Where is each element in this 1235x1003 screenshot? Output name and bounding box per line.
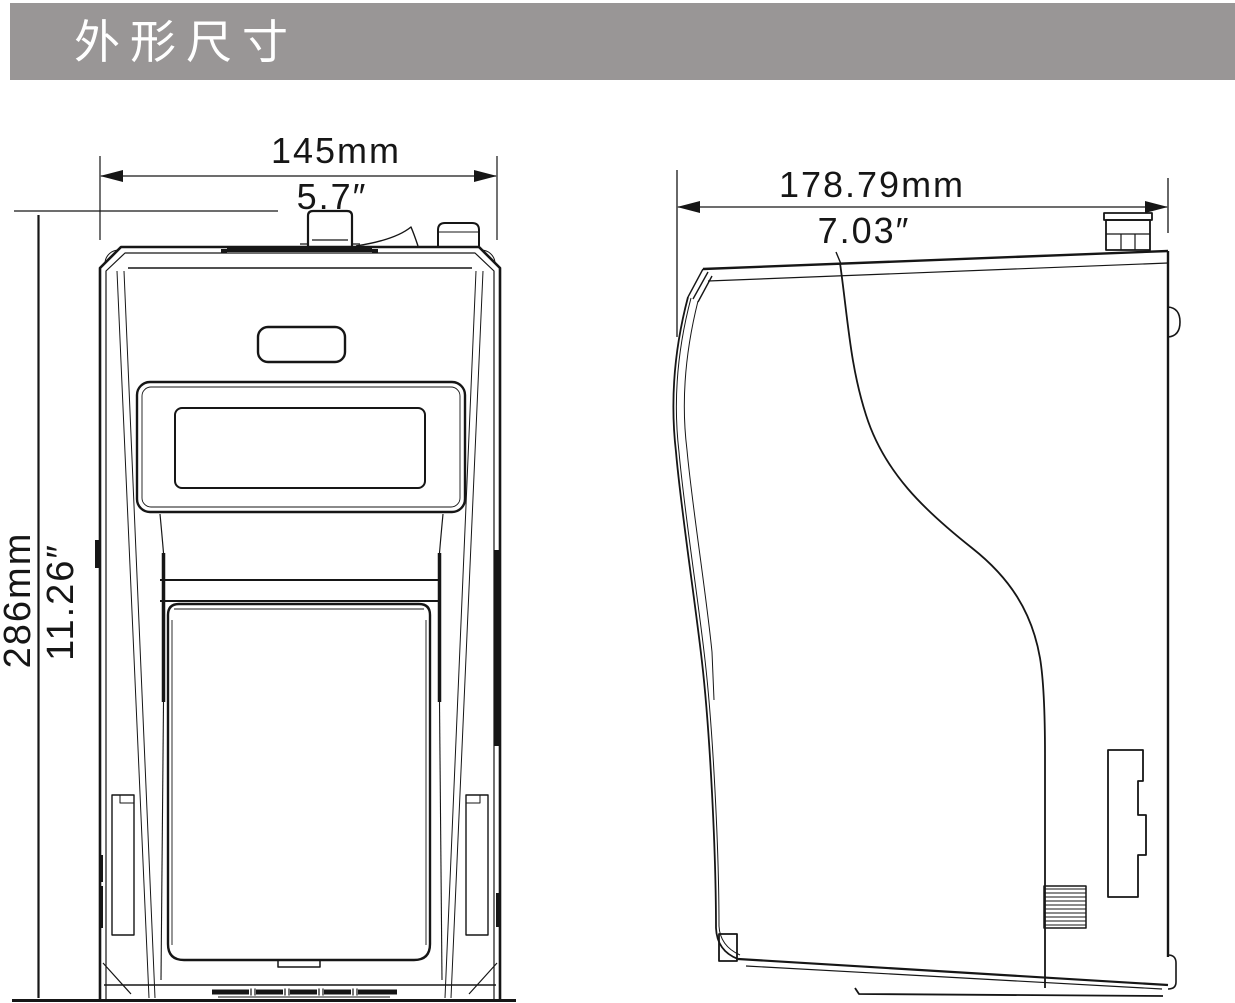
feed-button xyxy=(258,327,345,362)
display-bezel xyxy=(137,382,465,512)
recess-wall-right-top xyxy=(440,514,444,553)
side-view-drawing xyxy=(673,213,1180,996)
side-bottom-edge-inner xyxy=(746,966,1162,989)
recess-wall-left-top xyxy=(160,514,164,553)
side-depth-in-label: 7.03″ xyxy=(818,210,911,251)
release-lever xyxy=(356,227,418,246)
paper-door xyxy=(168,604,430,960)
front-width-mm-label: 145mm xyxy=(271,130,401,171)
front-height-in-label: 11.26″ xyxy=(40,543,82,661)
side-depth-arrow-left xyxy=(677,201,700,213)
side-depth-mm-label: 178.79mm xyxy=(779,164,965,205)
terminal-block xyxy=(1104,213,1152,250)
port-panel xyxy=(1108,750,1146,897)
front-height-mm-label: 286mm xyxy=(0,532,39,669)
front-view-drawing xyxy=(95,211,500,1001)
front-width-in-label: 5.7″ xyxy=(297,176,368,217)
display-window xyxy=(175,408,425,488)
page: 外形尺寸 xyxy=(0,0,1235,1003)
grip-texture xyxy=(1044,886,1086,928)
recess-wall-left-lower xyxy=(161,702,164,980)
side-front-curve-mid xyxy=(676,298,740,955)
recess-wall-right-lower xyxy=(440,702,443,980)
dimension-drawing: 145mm 5.7″ 286mm 11.26″ 178.79mm 7.03″ xyxy=(0,0,1235,1003)
bottom-vents xyxy=(212,989,397,998)
side-depth-arrow-right xyxy=(1145,201,1168,213)
side-small-knob xyxy=(438,223,479,246)
front-width-arrow-right xyxy=(474,170,497,182)
side-top-chamfer xyxy=(688,269,712,302)
paper-door-inner-line xyxy=(172,609,426,945)
right-bevel-lines xyxy=(445,271,483,998)
cover-parting-start-tick xyxy=(836,252,841,264)
side-bottom-edge xyxy=(738,959,1168,985)
side-bottom-lowest-line xyxy=(855,988,1163,996)
left-bevel-lines xyxy=(117,271,155,998)
tear-bar-band xyxy=(160,580,440,601)
front-width-arrow-left xyxy=(100,170,123,182)
back-foot xyxy=(1168,955,1176,989)
cover-parting-line xyxy=(840,263,1045,988)
side-front-curve-outer xyxy=(673,297,738,959)
back-latch-bump xyxy=(1168,307,1180,337)
top-slot xyxy=(221,247,378,253)
